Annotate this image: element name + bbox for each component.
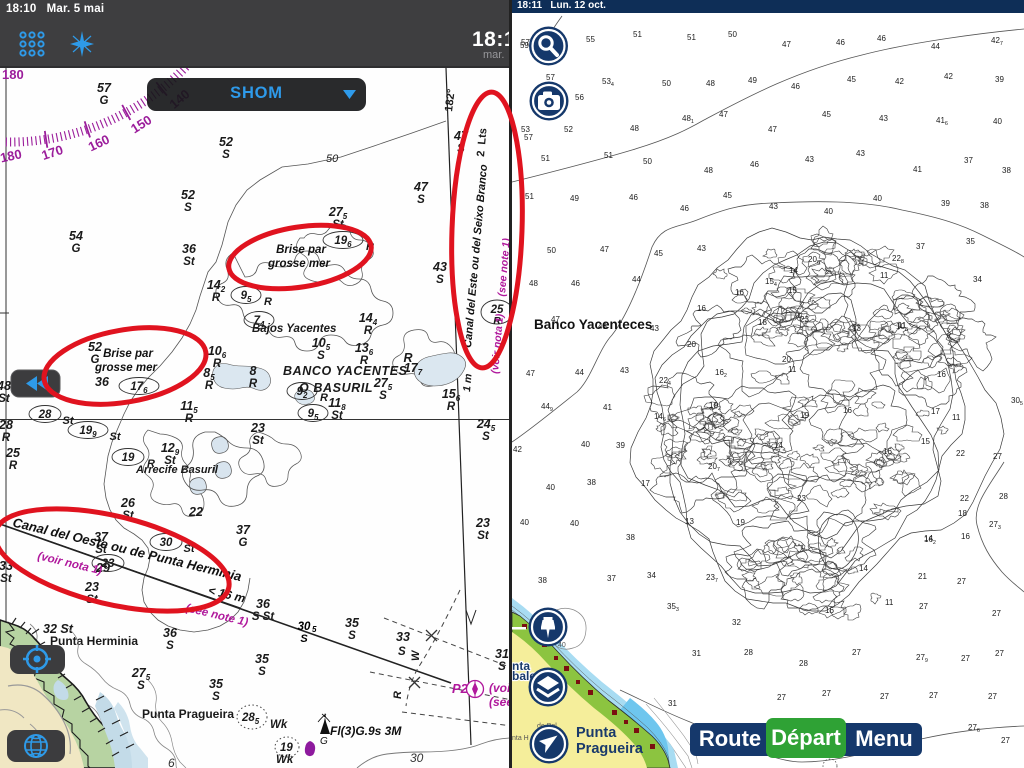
svg-text:Brise par: Brise par [103,348,153,360]
svg-text:grosse mer: grosse mer [267,258,331,270]
svg-text:grosse mer: grosse mer [94,362,158,374]
svg-text:Brise par: Brise par [276,244,326,256]
